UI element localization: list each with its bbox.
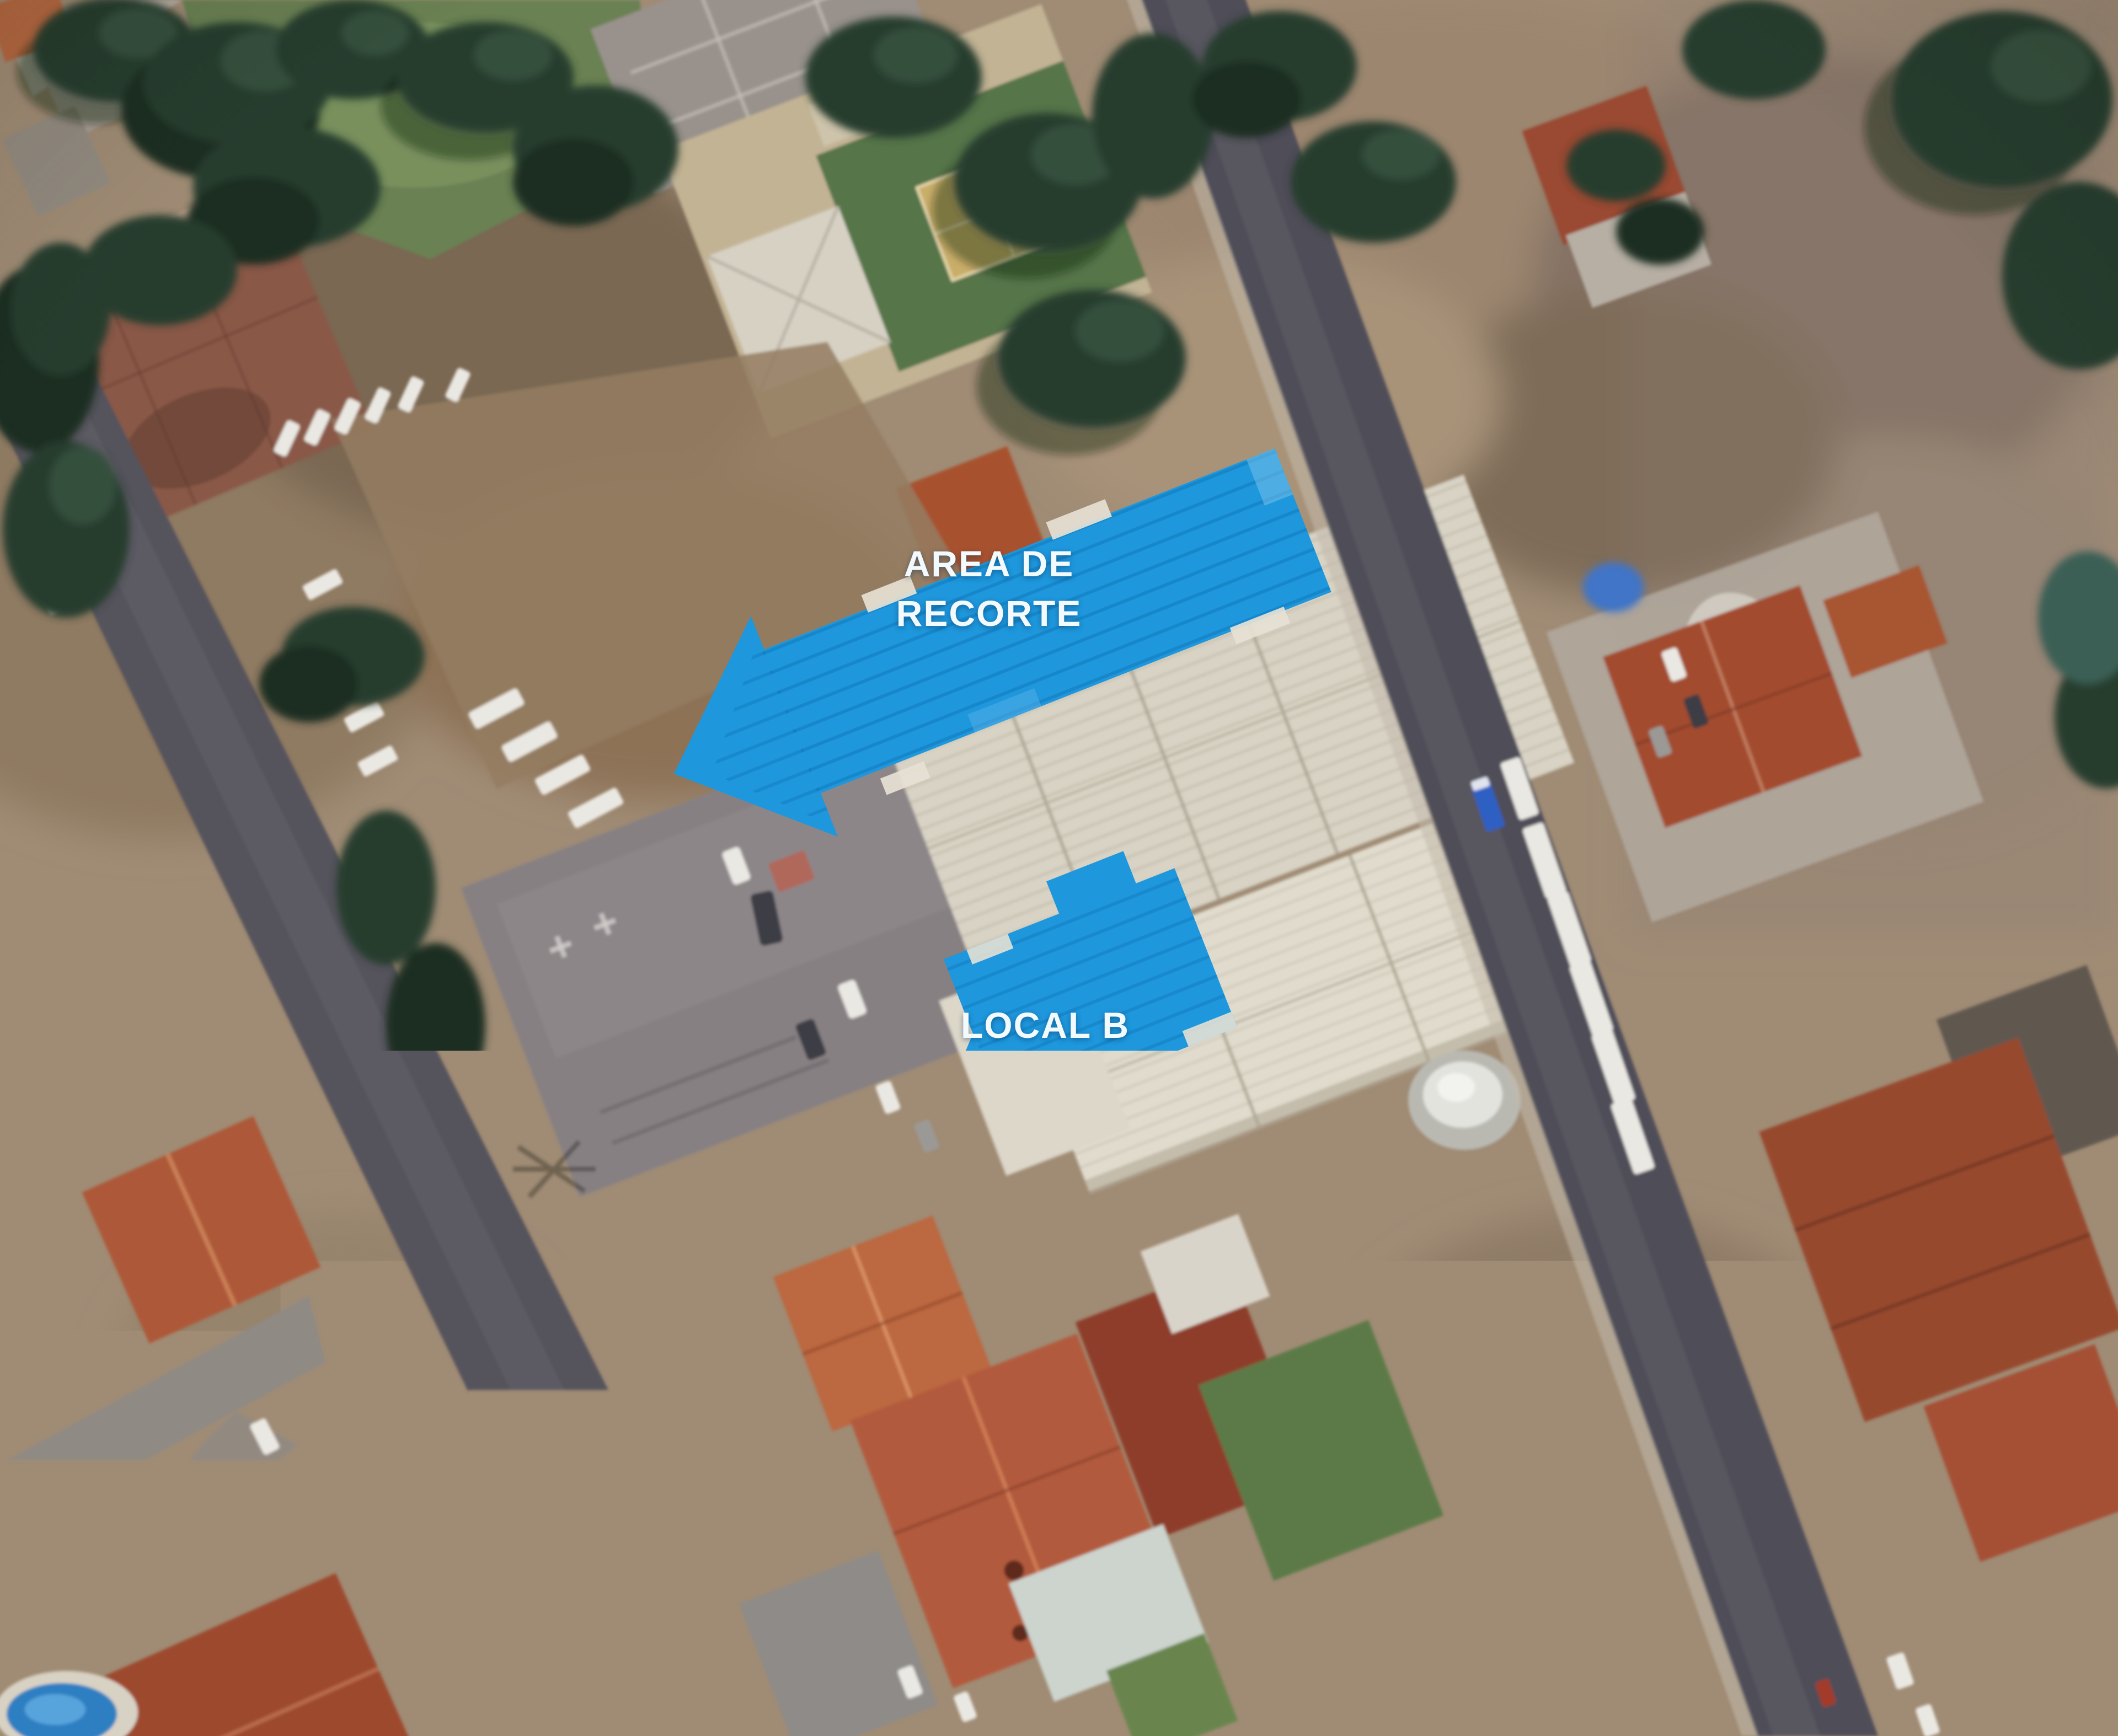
aerial-photo: AREA DE RECORTE LOCAL B PAD [0,0,2118,1736]
vignette [0,0,2118,1736]
